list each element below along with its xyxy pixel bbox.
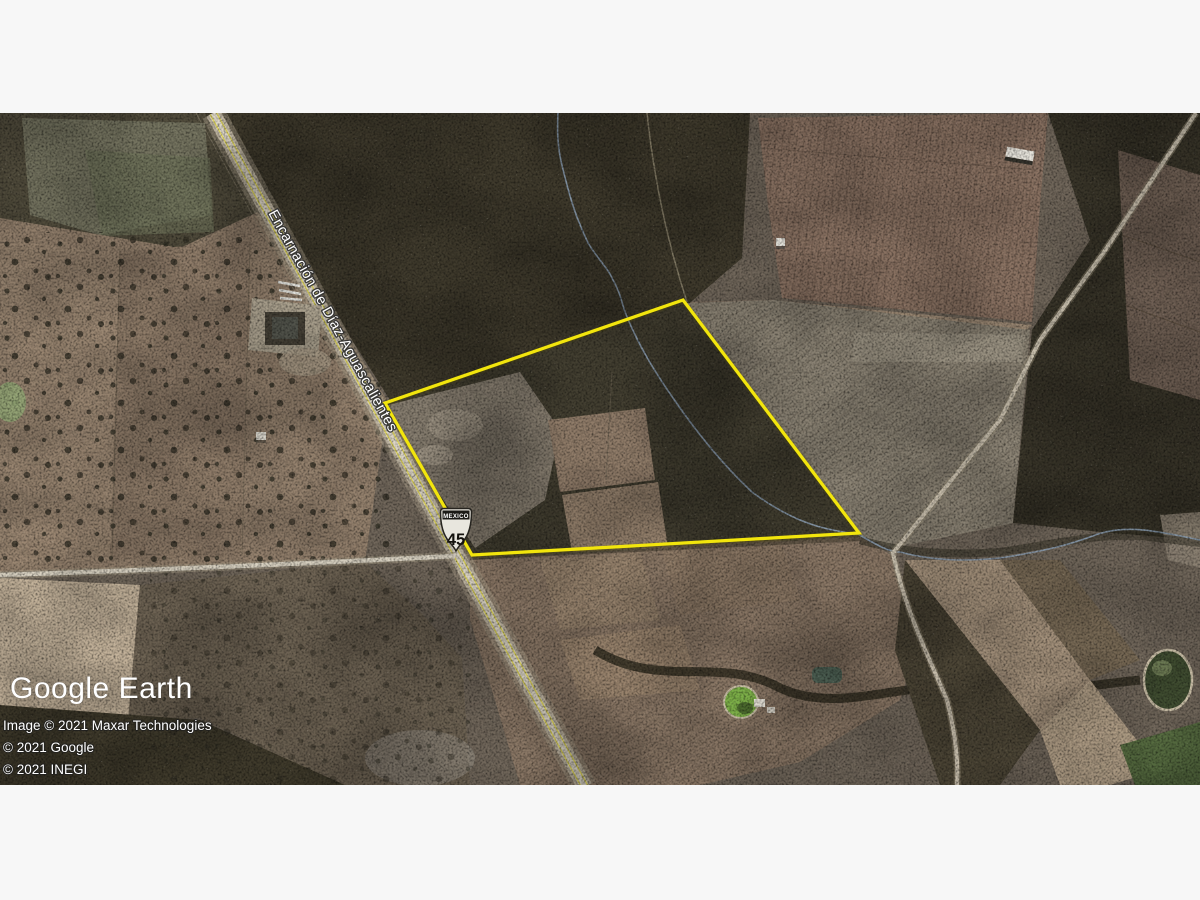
letterbox-bottom: [0, 785, 1200, 900]
attribution-line: © 2021 INEGI: [3, 762, 87, 777]
satellite-map[interactable]: MEXICO 45 Encarnación de Díaz-Aguascalie…: [0, 113, 1200, 785]
google-earth-screenshot: MEXICO 45 Encarnación de Díaz-Aguascalie…: [0, 0, 1200, 900]
letterbox-top: [0, 0, 1200, 113]
attribution-line: Image © 2021 Maxar Technologies: [3, 718, 212, 733]
shield-number: 45: [447, 531, 465, 549]
map-viewport[interactable]: MEXICO 45 Encarnación de Díaz-Aguascalie…: [0, 113, 1200, 785]
shield-banner: MEXICO: [443, 514, 469, 520]
attribution-line: © 2021 Google: [3, 740, 94, 755]
google-earth-logo: Google Earth: [10, 672, 193, 705]
